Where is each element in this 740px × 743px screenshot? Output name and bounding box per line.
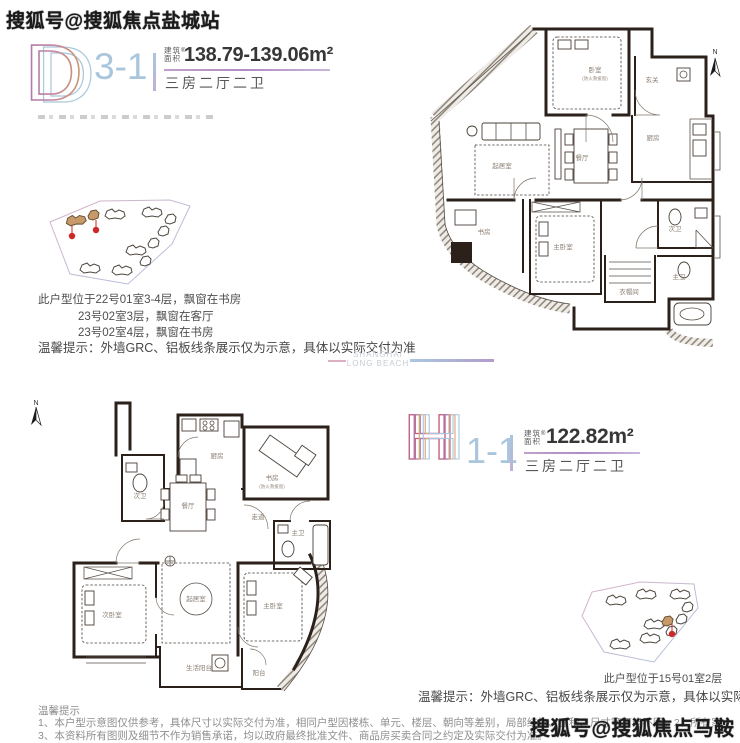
room-label: 主卧室: [263, 601, 283, 610]
room-label: 次卫: [134, 491, 148, 500]
room-label: 阳台: [253, 668, 266, 677]
plan-h-doors: [116, 437, 310, 665]
unit-h-underline: [524, 452, 640, 454]
faint-caption-line: [38, 115, 216, 119]
project-watermark-l2: LONG BEACH: [346, 359, 410, 368]
room-label: 卧室: [589, 65, 603, 74]
watermark-bottom: 搜狐号@搜狐焦点马鞍山站: [530, 712, 740, 743]
unit-h-separator: [510, 435, 513, 471]
unit-d-code: 3-1: [94, 46, 147, 88]
room-label: 衣帽间: [619, 287, 639, 296]
ceiling-fan: [165, 556, 175, 566]
unit-d-underline: [164, 69, 330, 71]
unit-h-layout: 三房二厅二卫: [525, 456, 627, 476]
plan-h-furniture: [82, 419, 328, 671]
area-label-l2: 面积: [524, 438, 546, 446]
unit-h-letter-4: H: [418, 401, 464, 467]
room-label: 厨房: [211, 451, 224, 460]
room-label: 次卫: [669, 224, 683, 233]
room-label: 书房: [478, 227, 491, 236]
room-label: 走道: [252, 512, 266, 521]
siteplan-h: [578, 566, 740, 668]
unit-d-letter: D: [25, 28, 83, 112]
room-label: 起居室: [492, 161, 512, 170]
north-indicator-d: N: [710, 49, 720, 76]
room-note: (防火救援窗): [259, 483, 285, 490]
location-line: 23号02室3层，飘窗在客厅: [38, 309, 241, 326]
room-label: 玄关: [646, 75, 660, 84]
unit-d-layout: 三房二厅二卫: [165, 73, 267, 93]
plan-d-hatch-border: [431, 29, 713, 343]
room-label: 生活阳台: [186, 663, 212, 672]
unit-d-location-block: 此户型位于22号01室3-4层，飘窗在书房 23号02室3层，飘窗在客厅 23号…: [38, 292, 241, 342]
room-note: (防火救援窗): [582, 75, 608, 82]
room-label: 主卫: [292, 528, 306, 537]
siteplan-d: [30, 192, 200, 296]
unit-d-separator: [153, 53, 156, 91]
unit-h-letter-art: H H H H: [404, 397, 466, 467]
room-label: 次卧室: [102, 610, 122, 619]
study-desk: [259, 427, 316, 479]
divider-line-right: [410, 359, 494, 362]
room-label: 餐厅: [182, 501, 196, 510]
project-watermark-l1: SHANGHAI: [346, 350, 410, 359]
room-label: 餐厅: [576, 153, 590, 162]
unit-d-area-value: 138.79-139.06m²: [184, 44, 333, 67]
room-label: 书房: [266, 473, 279, 482]
floorplan-d: 卧室 (防火救援窗) 玄关 厨房 起居室 餐厅 书房 主卧室 次卫 衣帽间 主卫…: [422, 12, 740, 350]
location-line: 此户型位于22号01室3-4层，飘窗在书房: [38, 292, 241, 309]
project-watermark: SHANGHAI LONG BEACH: [346, 350, 410, 368]
north-label: N: [33, 400, 38, 407]
floorplan-page: 搜狐号@搜狐焦点盐城站 D D 3-1 建筑® 面积 138.79-139.06…: [0, 0, 740, 743]
room-label: 主卧室: [553, 242, 573, 251]
north-indicator-h: N: [31, 400, 41, 425]
north-label: N: [712, 49, 717, 56]
unit-h-area-label: 建筑® 面积: [524, 430, 546, 446]
unit-h-area-value: 122.82m²: [546, 425, 634, 449]
floorplan-h: 厨房 书房 (防火救援窗) 次卫 餐厅 走道 主卫 次卧室 起居室 主卧室 生活…: [28, 397, 338, 693]
room-label: 厨房: [647, 133, 660, 142]
room-label: 主卫: [673, 272, 687, 281]
room-label: 起居室: [186, 594, 206, 603]
divider-line-left: [328, 360, 346, 362]
